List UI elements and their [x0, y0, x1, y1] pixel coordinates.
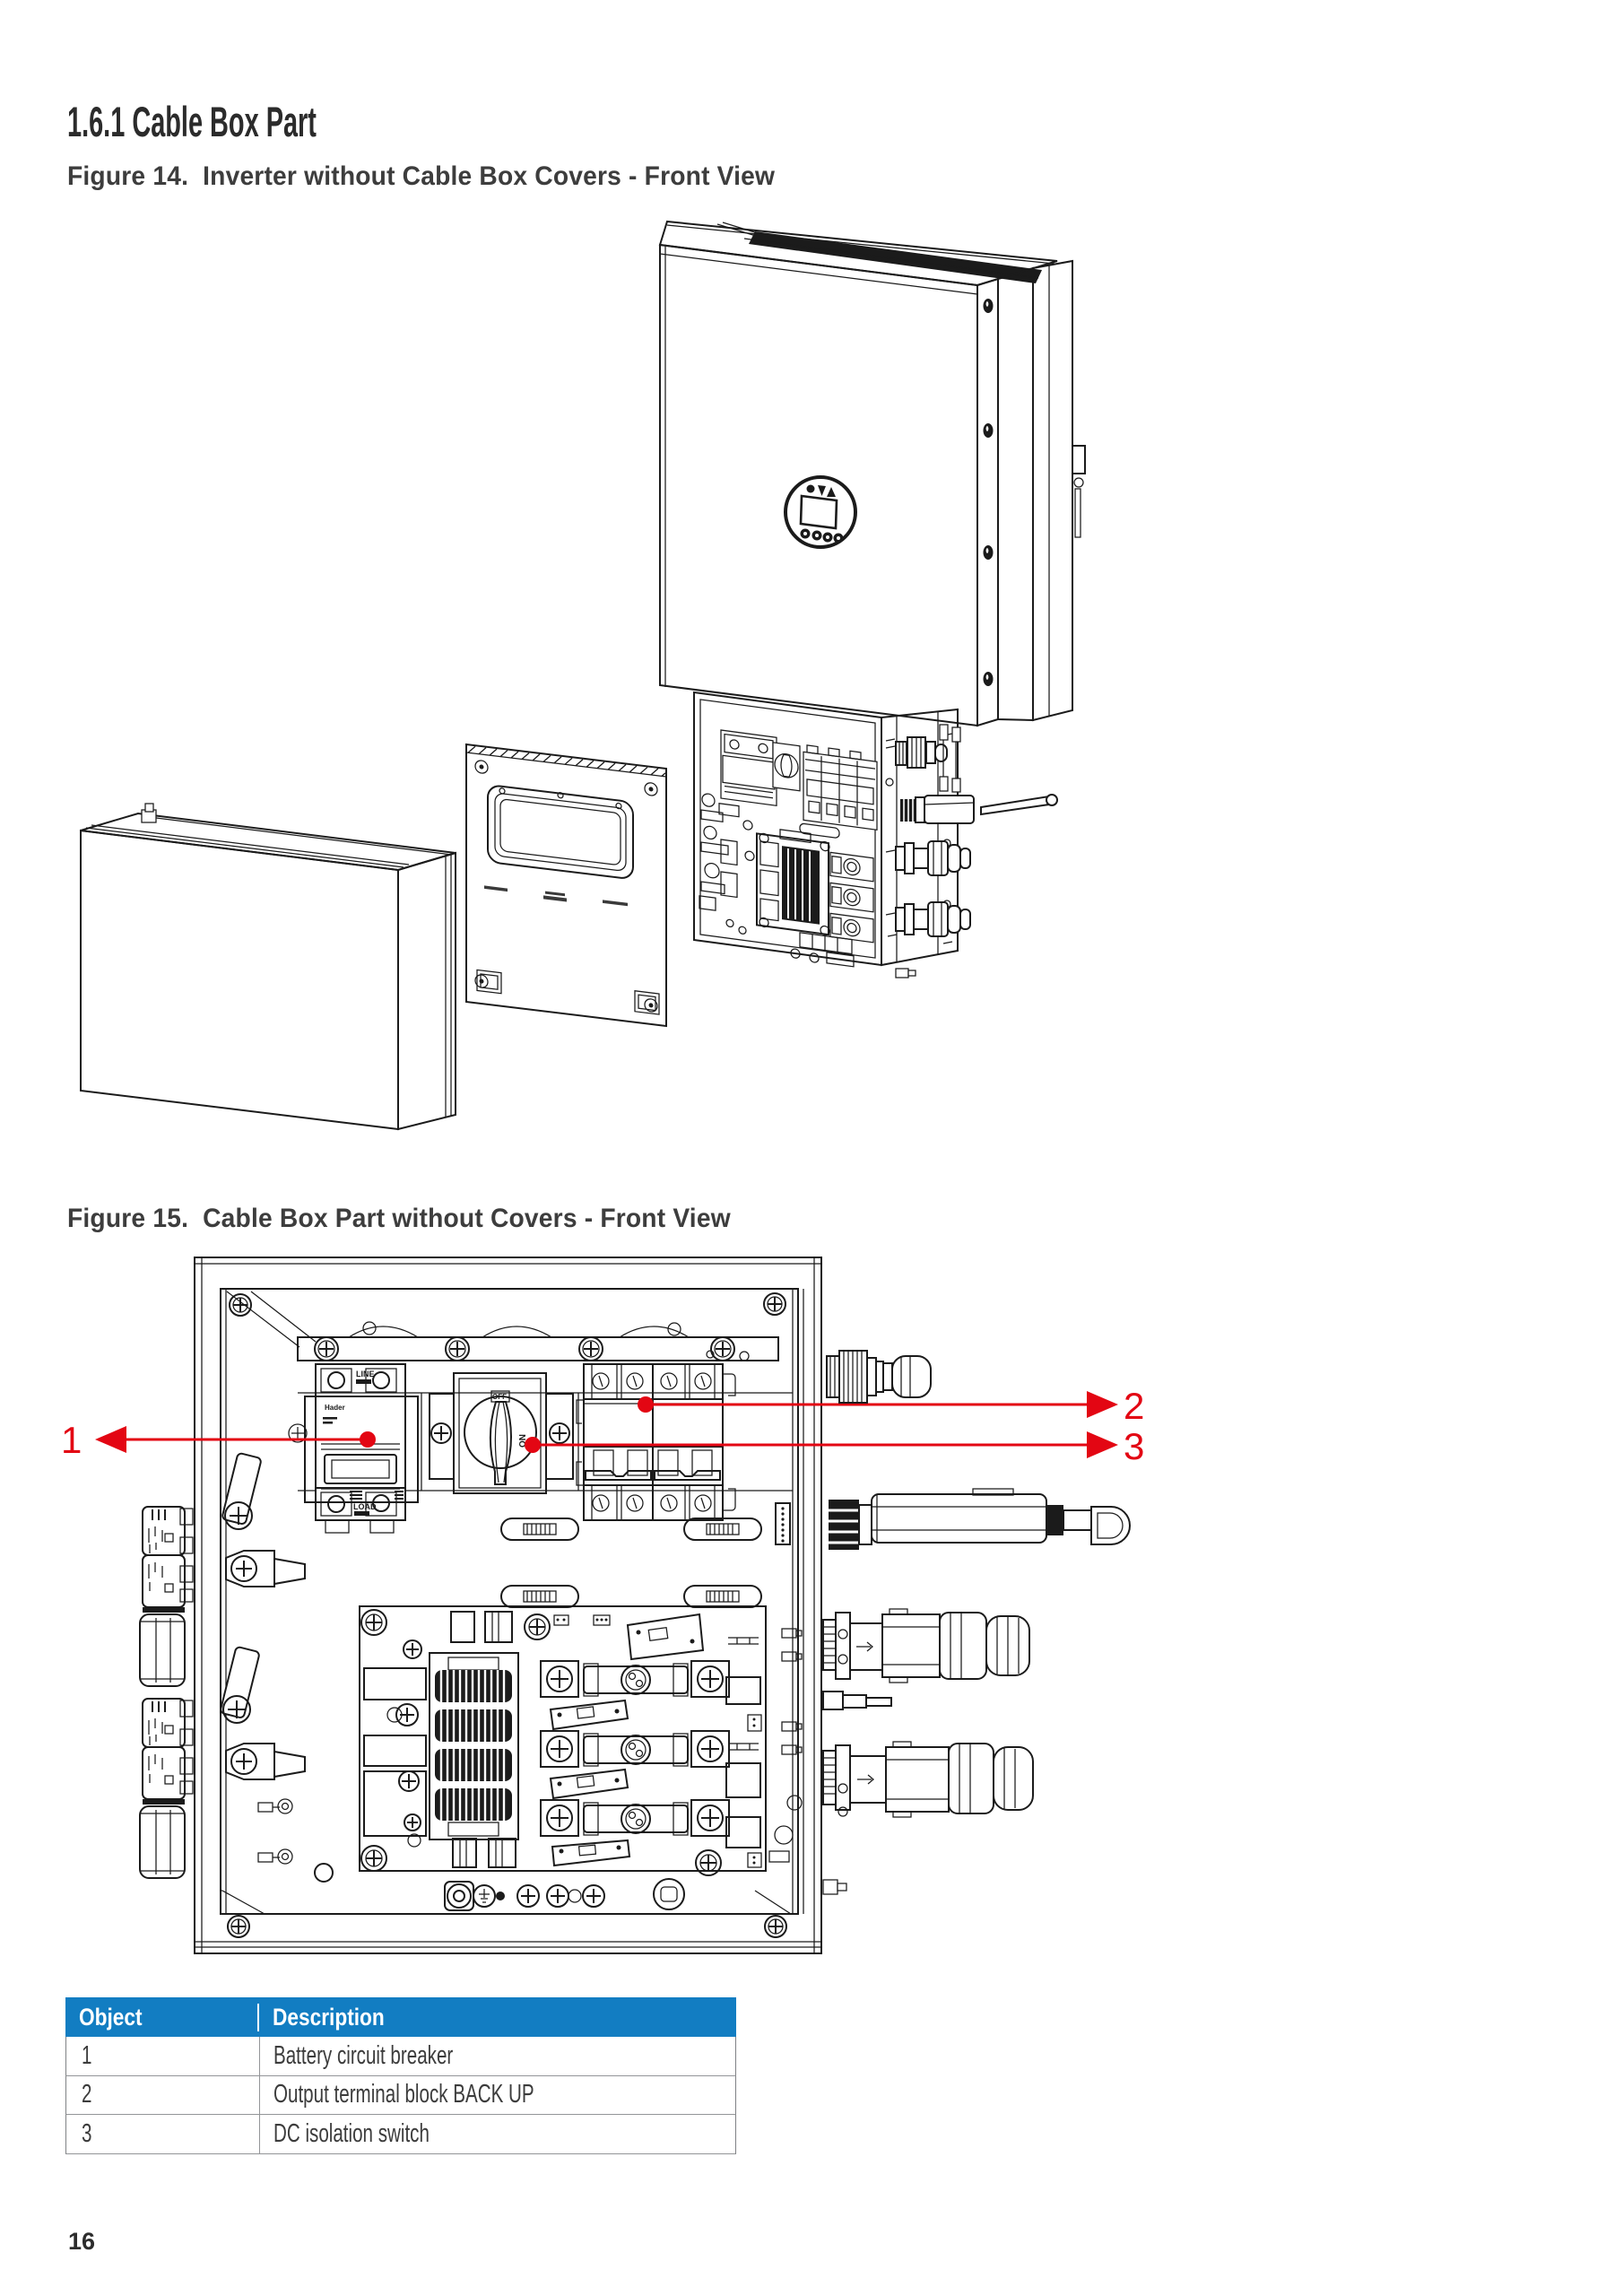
svg-text:1: 1: [61, 1419, 82, 1461]
svg-text:Hader: Hader: [325, 1404, 345, 1412]
svg-text:2: 2: [1124, 1385, 1144, 1427]
svg-text:LINE: LINE: [356, 1370, 375, 1378]
svg-text:LOAD: LOAD: [353, 1502, 377, 1511]
svg-text:OFF: OFF: [492, 1393, 507, 1401]
svg-text:3: 3: [1124, 1425, 1144, 1467]
